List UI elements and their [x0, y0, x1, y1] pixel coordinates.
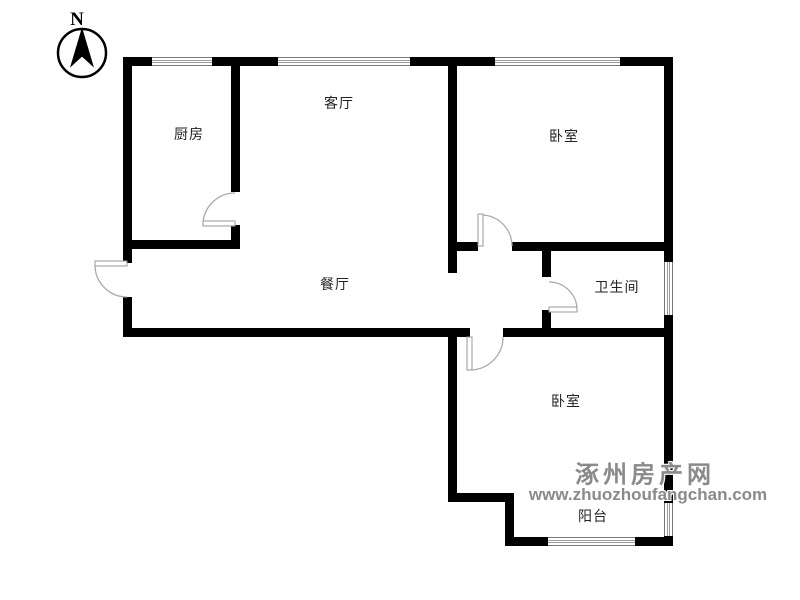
- room-label-living-room: 客厅: [324, 93, 354, 113]
- room-label-balcony: 阳台: [578, 506, 608, 526]
- living-room-window: [278, 57, 410, 66]
- bedroom-top-door: [478, 214, 512, 246]
- balcony-right-window: [664, 503, 673, 536]
- watermark-url: www.zhuozhoufangchan.com: [529, 485, 767, 505]
- bathroom-window: [664, 262, 673, 315]
- floor-plan-canvas: N 厨房 客厅 卧室 餐厅 卫生间 卧室 阳台: [0, 0, 800, 600]
- north-arrow-icon: N: [58, 9, 106, 77]
- bedroom-top-window: [495, 57, 620, 66]
- bedroom-bottom-door: [467, 337, 503, 370]
- compass-north-label: N: [70, 9, 84, 30]
- room-label-bathroom: 卫生间: [595, 277, 640, 297]
- room-label-bedroom-bottom: 卧室: [551, 391, 581, 411]
- doors-and-compass-overlay: N: [0, 0, 800, 600]
- balcony-bottom-window: [548, 537, 635, 546]
- room-label-kitchen: 厨房: [174, 124, 204, 144]
- room-label-dining-room: 餐厅: [320, 274, 350, 294]
- entry-door: [95, 261, 127, 297]
- kitchen-window: [152, 57, 212, 66]
- room-label-bedroom-top: 卧室: [549, 126, 579, 146]
- bathroom-door: [549, 282, 577, 312]
- kitchen-door: [203, 193, 235, 226]
